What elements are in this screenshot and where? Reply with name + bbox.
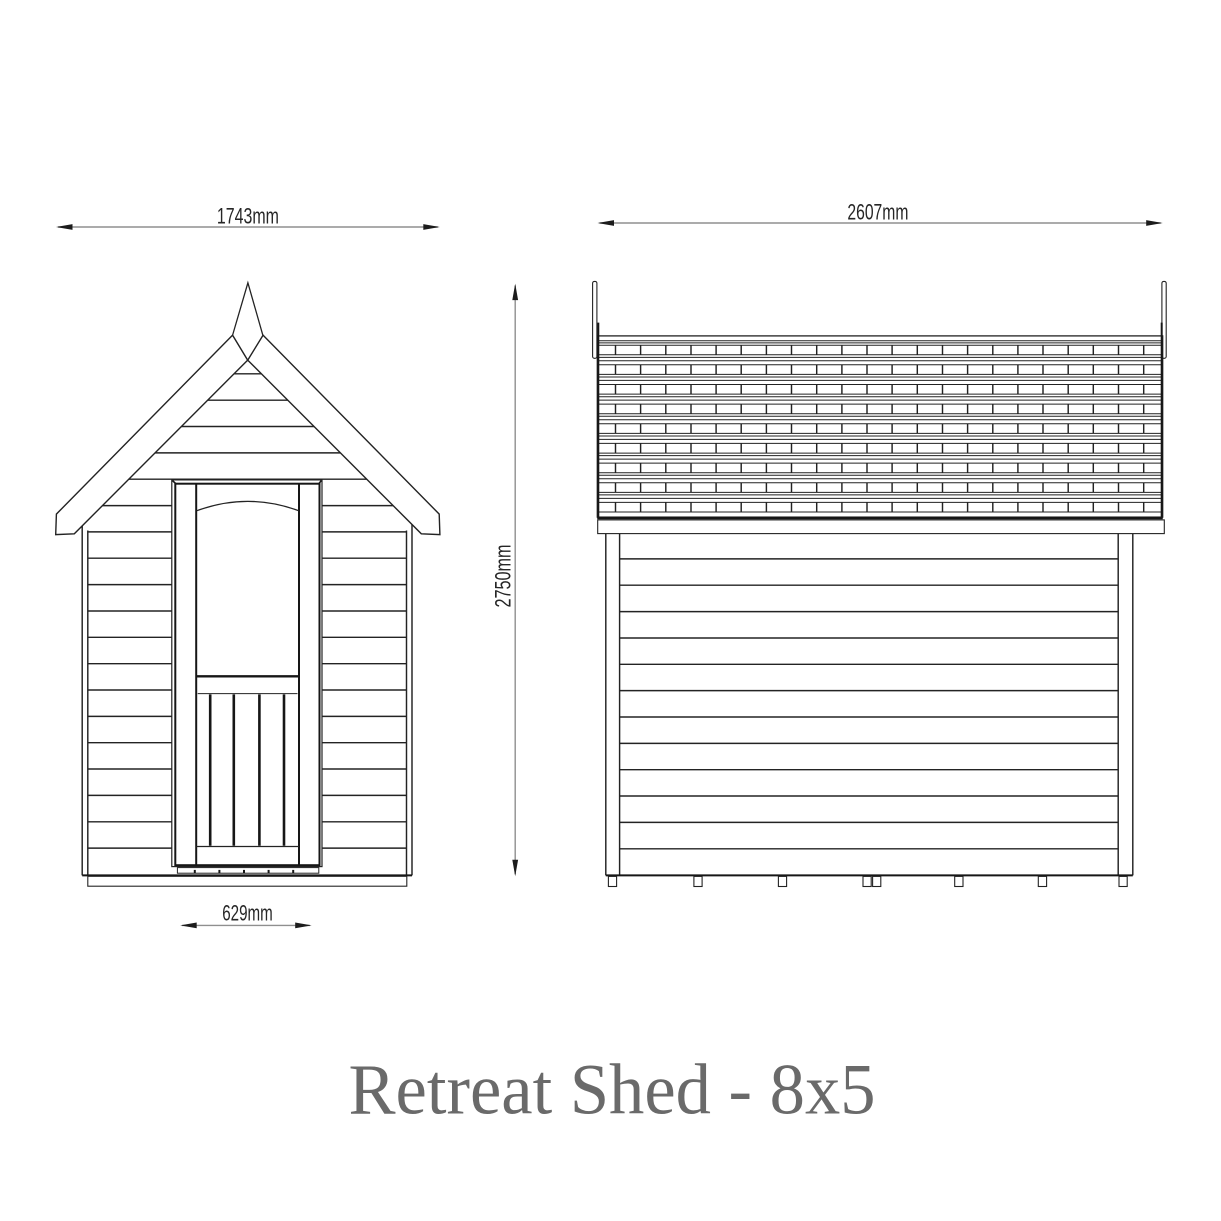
svg-text:629mm: 629mm — [222, 900, 273, 925]
svg-text:2750mm: 2750mm — [490, 545, 515, 608]
svg-text:1743mm: 1743mm — [217, 204, 279, 229]
svg-text:Retreat Shed - 8x5: Retreat Shed - 8x5 — [349, 1050, 876, 1130]
svg-text:2607mm: 2607mm — [847, 199, 908, 224]
